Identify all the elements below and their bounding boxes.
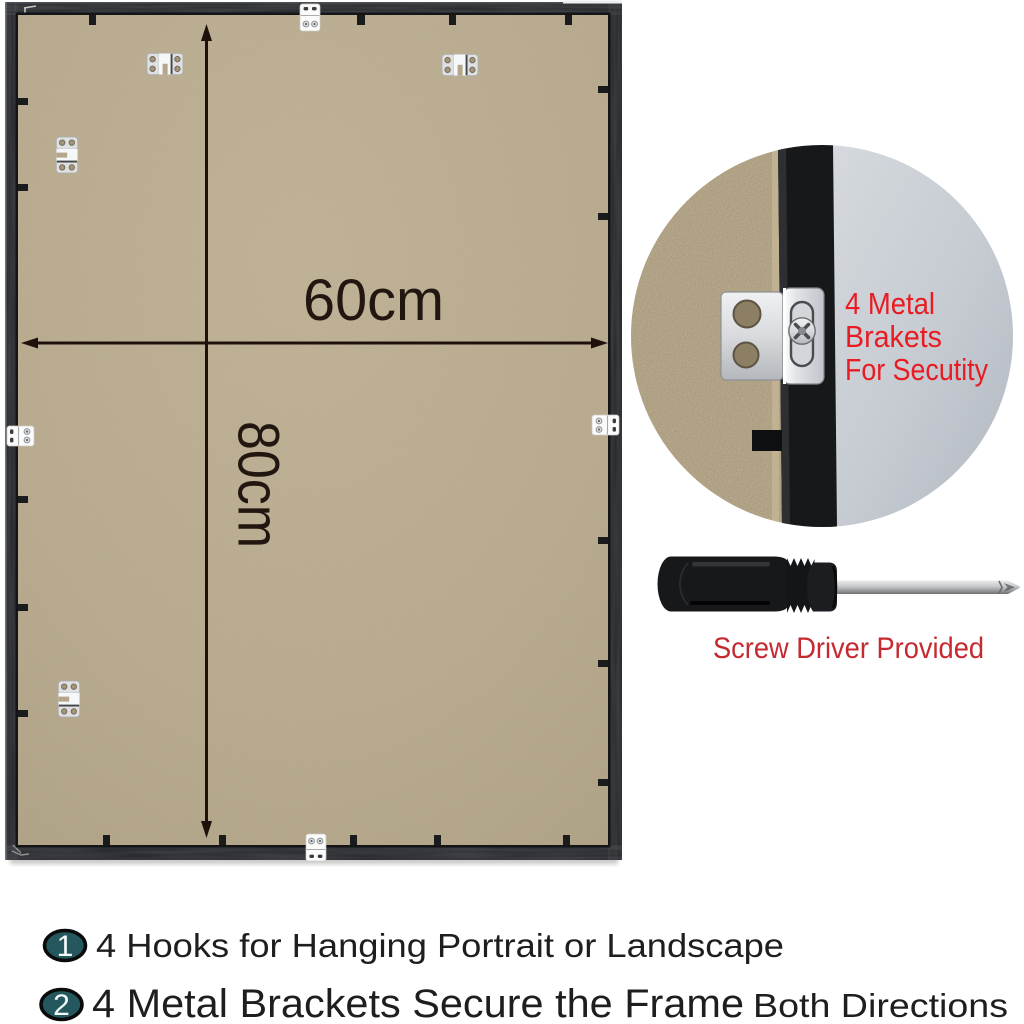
svg-text:For Secutity: For Secutity <box>845 352 988 387</box>
svg-text:Screw Driver Provided: Screw Driver Provided <box>713 632 984 665</box>
svg-text:Brakets: Brakets <box>845 319 942 354</box>
svg-text:4 Metal: 4 Metal <box>845 286 935 321</box>
svg-text:1: 1 <box>57 930 74 963</box>
svg-text:Both Directions: Both Directions <box>753 987 1008 1024</box>
svg-text:60cm: 60cm <box>303 268 444 333</box>
svg-text:4 Metal Brackets Secure the Fr: 4 Metal Brackets Secure the Frame <box>92 982 744 1024</box>
svg-text:80cm: 80cm <box>226 421 291 548</box>
svg-text:4 Hooks for Hanging Portrait o: 4 Hooks for Hanging Portrait or Landscap… <box>96 927 784 964</box>
svg-text:2: 2 <box>53 989 70 1022</box>
